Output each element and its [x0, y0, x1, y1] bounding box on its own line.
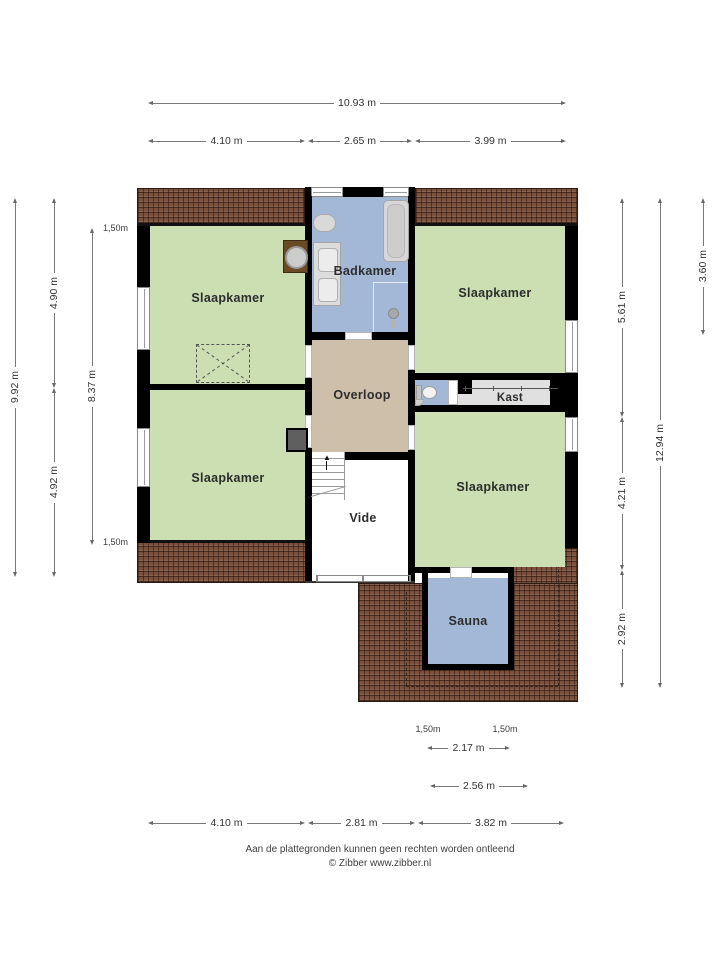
wall-segment [422, 664, 514, 670]
dimension-bottom-seg2: 2.81 m [308, 817, 415, 829]
dimension-text: 3.99 m [470, 135, 510, 147]
flue-circle [285, 246, 308, 269]
dimension-text: 2.92 m [616, 609, 628, 649]
chimney-flue [283, 240, 308, 273]
dimension-right-total: 12.94 m [653, 198, 667, 688]
dimension-text: 10.93 m [334, 97, 380, 109]
dimension-top-seg2: 2.65 m [308, 135, 412, 147]
wall-segment [415, 373, 578, 380]
room-label-badkamer: Badkamer [334, 264, 397, 278]
dimension-right-seg3: 2.92 m [615, 570, 629, 688]
railing-post [316, 575, 318, 581]
door-opening [408, 425, 415, 450]
dimension-text: 8.37 m [86, 366, 98, 406]
wall-segment [372, 332, 408, 340]
shower-stem [391, 320, 396, 328]
dimension-text: 3.60 m [697, 246, 709, 286]
toilet-bowl [422, 386, 437, 399]
dimension-left-total: 9.92 m [8, 198, 22, 577]
wall-segment [415, 405, 578, 412]
wall-segment [312, 332, 345, 340]
knee-height-label: 1,50m [103, 223, 128, 233]
towel-radiator [313, 214, 336, 232]
wall-segment [305, 448, 312, 583]
dimension-left-seg1: 4.90 m [47, 198, 61, 388]
roof-window-x-icon [197, 345, 249, 382]
wall-segment [565, 452, 578, 548]
wall-segment [137, 384, 312, 390]
dimension-text: 12.94 m [654, 420, 666, 466]
door-opening [408, 345, 415, 370]
room-label-overloop: Overloop [333, 388, 390, 402]
footer-credit: © Zibber www.zibber.nl [160, 857, 600, 871]
dimension-right-seg1: 5.61 m [615, 198, 629, 417]
footer: Aan de plattegronden kunnen geen rechten… [160, 843, 600, 870]
dimension-text: 2.56 m [459, 780, 499, 792]
dimension-sauna-outer: 2.56 m [430, 780, 528, 792]
wall-segment [408, 196, 415, 345]
window [565, 417, 578, 452]
vide-railing [316, 575, 411, 582]
dimension-bottom-seg3: 3.82 m [418, 817, 564, 829]
dimension-left-inner: 8.37 m [85, 228, 99, 545]
wall-segment [408, 370, 415, 425]
wall-segment [137, 487, 150, 543]
dimension-top-seg3: 3.99 m [415, 135, 566, 147]
roof-top-right [415, 188, 578, 226]
knee-height-label: 1,50m [103, 537, 128, 547]
dimension-text: 5.61 m [616, 287, 628, 327]
dimension-left-seg2: 4.92 m [47, 388, 61, 577]
rail-tick [549, 386, 550, 391]
knee-wall-dashed-line [558, 560, 560, 686]
room-label-slaapkamer-bl: Slaapkamer [191, 471, 264, 485]
room-label-slaapkamer-tr: Slaapkamer [458, 286, 531, 300]
railing-post [409, 575, 411, 581]
railing-post [362, 575, 364, 581]
stairs: ▲ [312, 452, 345, 500]
chimney [286, 428, 308, 452]
wall-segment [422, 572, 428, 670]
wall-segment [343, 452, 415, 460]
dimension-text: 2.17 m [448, 742, 488, 754]
door-opening [450, 567, 472, 578]
room-slaapkamer-bottom-left [150, 390, 305, 540]
rail-tick [493, 386, 494, 391]
door-opening [448, 380, 458, 405]
wall-segment [565, 226, 578, 320]
knee-height-label: 1,50m [485, 724, 525, 734]
dimension-text: 4.90 m [48, 273, 60, 313]
wall-segment [508, 572, 514, 670]
door-opening [305, 345, 312, 378]
stairs-arrow-shaft [326, 461, 327, 470]
window [565, 320, 578, 373]
roof-bottom-left [137, 540, 307, 583]
room-label-slaapkamer-tl: Slaapkamer [191, 291, 264, 305]
dimension-text: 4.92 m [48, 462, 60, 502]
knee-wall-dashed-line [406, 592, 408, 686]
dimension-sauna-inner: 2.17 m [427, 742, 510, 754]
room-label-kast: Kast [497, 392, 523, 404]
roof-top-left [137, 188, 305, 226]
dimension-text: 4.10 m [206, 135, 246, 147]
footer-disclaimer: Aan de plattegronden kunnen geen rechten… [160, 843, 600, 857]
floorplan: ▲ Slaapkamer Badkamer Slaapkamer [0, 0, 720, 960]
window [137, 428, 150, 487]
bathtub-inner [387, 204, 405, 258]
rail-tick [465, 386, 466, 391]
dimension-text: 4.10 m [206, 817, 246, 829]
knee-wall-dashed-line [406, 686, 558, 688]
dormer-window [383, 187, 409, 197]
dimension-top-total: 10.93 m [148, 97, 566, 109]
dimension-top-seg1: 4.10 m [148, 135, 305, 147]
roof-window-dashed [196, 344, 250, 383]
dimension-text: 9.92 m [9, 367, 21, 407]
dimension-text: 4.21 m [616, 473, 628, 513]
window [137, 287, 150, 350]
sink-basin [318, 278, 338, 302]
room-label-sauna: Sauna [448, 614, 487, 628]
rail-tick [521, 386, 522, 391]
dimension-text: 2.81 m [341, 817, 381, 829]
dimension-bottom-seg1: 4.10 m [148, 817, 305, 829]
room-label-slaapkamer-br: Slaapkamer [456, 480, 529, 494]
dimension-right-seg2: 4.21 m [615, 417, 629, 570]
dormer-window [311, 187, 343, 197]
wall-segment [550, 380, 565, 405]
wall-segment [408, 450, 415, 583]
door-opening [345, 332, 372, 340]
dimension-right-upper: 3.60 m [696, 198, 710, 335]
bathtub [383, 200, 409, 262]
dimension-text: 2.65 m [340, 135, 380, 147]
knee-height-label: 1,50m [408, 724, 448, 734]
dimension-text: 3.82 m [471, 817, 511, 829]
wall-segment [137, 226, 150, 287]
shower-drain [388, 308, 399, 319]
wall-segment [343, 187, 383, 197]
clothes-rail [463, 388, 558, 389]
room-label-vide: Vide [349, 511, 376, 525]
